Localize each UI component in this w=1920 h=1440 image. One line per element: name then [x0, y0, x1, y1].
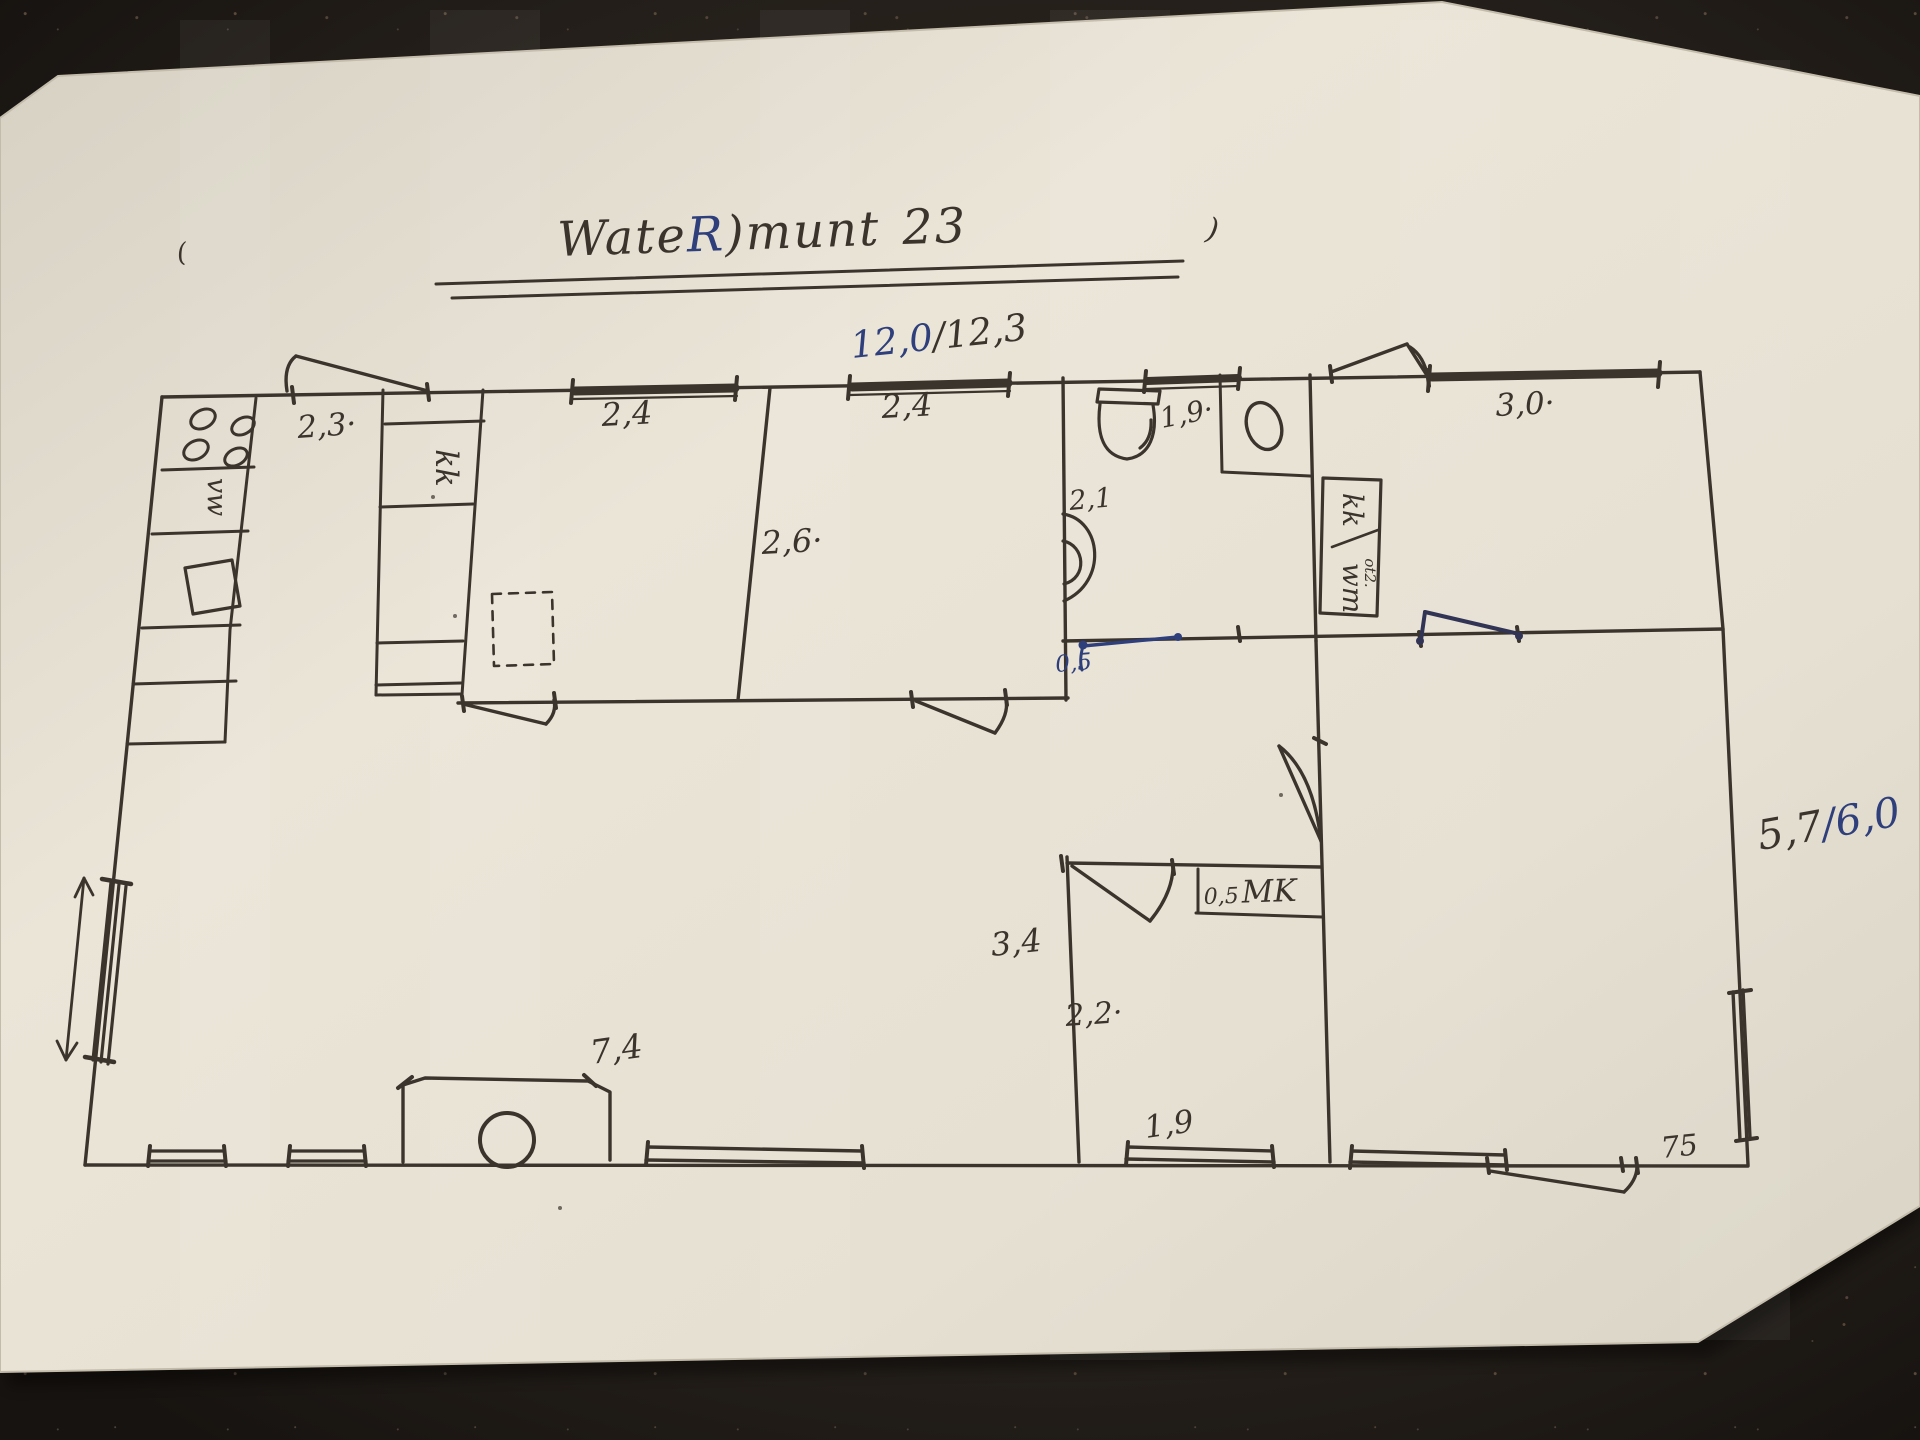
floor-plan-photo: WateR)munt23 ( ) 12,0/12,3 5,7/6,0 2,3· … [0, 0, 1920, 1440]
dim-bed1-window: 2,4 [599, 393, 653, 434]
dim-bath-door: 0,5 [1054, 649, 1093, 678]
dim-bed-depth: 2,6· [759, 521, 823, 562]
dim-mid-room: 2,2· [1063, 995, 1124, 1034]
svg-text:kk: kk [1336, 493, 1369, 527]
dim-bed2-window: 2,4 [879, 385, 933, 426]
label-dishwasher: vw [201, 478, 232, 516]
dim-right-window: 3,0· [1495, 385, 1556, 424]
dim-living: 3,4 [989, 921, 1044, 964]
dim-door-offset: 75 [1659, 1127, 1699, 1165]
dim-stove-bay: 7,4 [588, 1026, 645, 1072]
svg-text:ot2.: ot2. [1361, 558, 1379, 587]
label-fridge: kk [428, 449, 464, 487]
dim-bottom-window: 1,9 [1142, 1103, 1196, 1146]
dim-kitchen: 2,3· [295, 406, 358, 446]
dim-bath-depth: 2,1 [1067, 482, 1113, 517]
